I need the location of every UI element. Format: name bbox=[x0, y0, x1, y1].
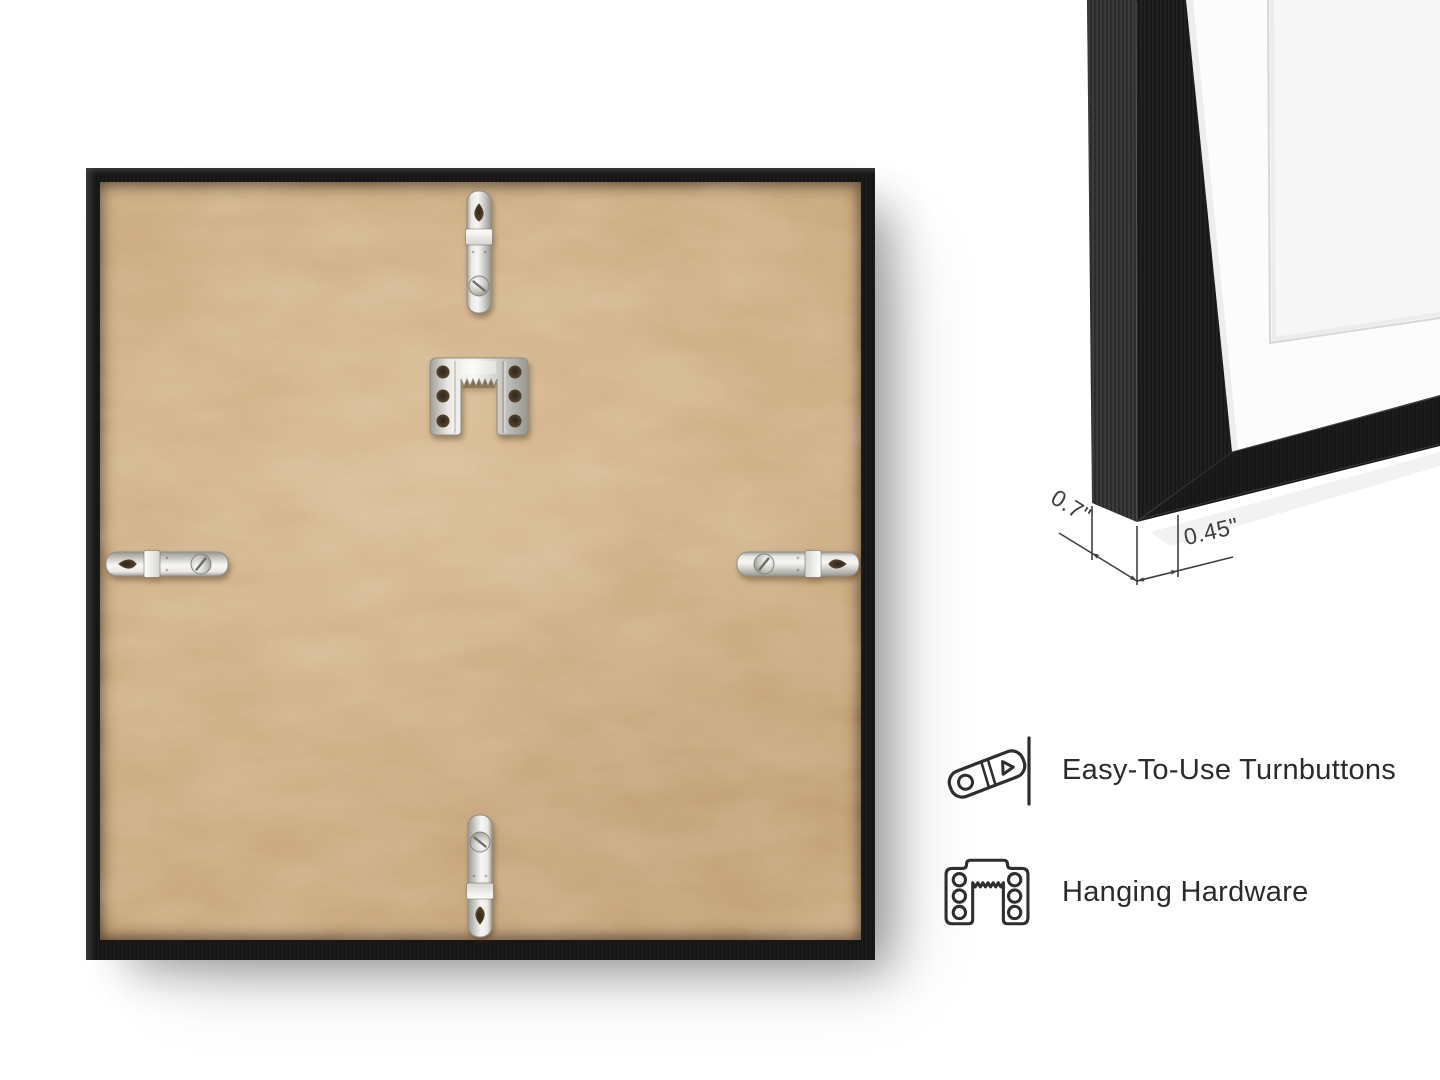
dimension-arrows bbox=[1092, 553, 1178, 581]
turnbutton-left bbox=[104, 544, 230, 584]
dimension-width-label: 0.45" bbox=[1181, 512, 1241, 550]
artwork-area bbox=[1268, 0, 1440, 343]
turnbutton-bottom bbox=[460, 813, 500, 939]
turnbutton-right bbox=[735, 544, 861, 584]
feature-turnbuttons: Easy-To-Use Turnbuttons bbox=[940, 730, 1396, 810]
frame-corner-closeup: 0.7" 0.45" bbox=[1020, 0, 1440, 620]
feature-hanging-hardware-label: Hanging Hardware bbox=[1062, 876, 1309, 909]
feature-turnbuttons-label: Easy-To-Use Turnbuttons bbox=[1062, 754, 1396, 787]
turnbutton-top bbox=[459, 189, 499, 315]
turnbutton-icon bbox=[940, 730, 1036, 810]
hanging-hardware-icon bbox=[944, 856, 1030, 928]
product-image: 0.7" 0.45" Easy-To-Use Turnbuttons Hangi… bbox=[0, 0, 1440, 1080]
sawtooth-hanger-plate bbox=[427, 355, 531, 437]
dimension-depth-label: 0.7" bbox=[1046, 484, 1096, 528]
feature-hanging-hardware: Hanging Hardware bbox=[944, 856, 1309, 928]
